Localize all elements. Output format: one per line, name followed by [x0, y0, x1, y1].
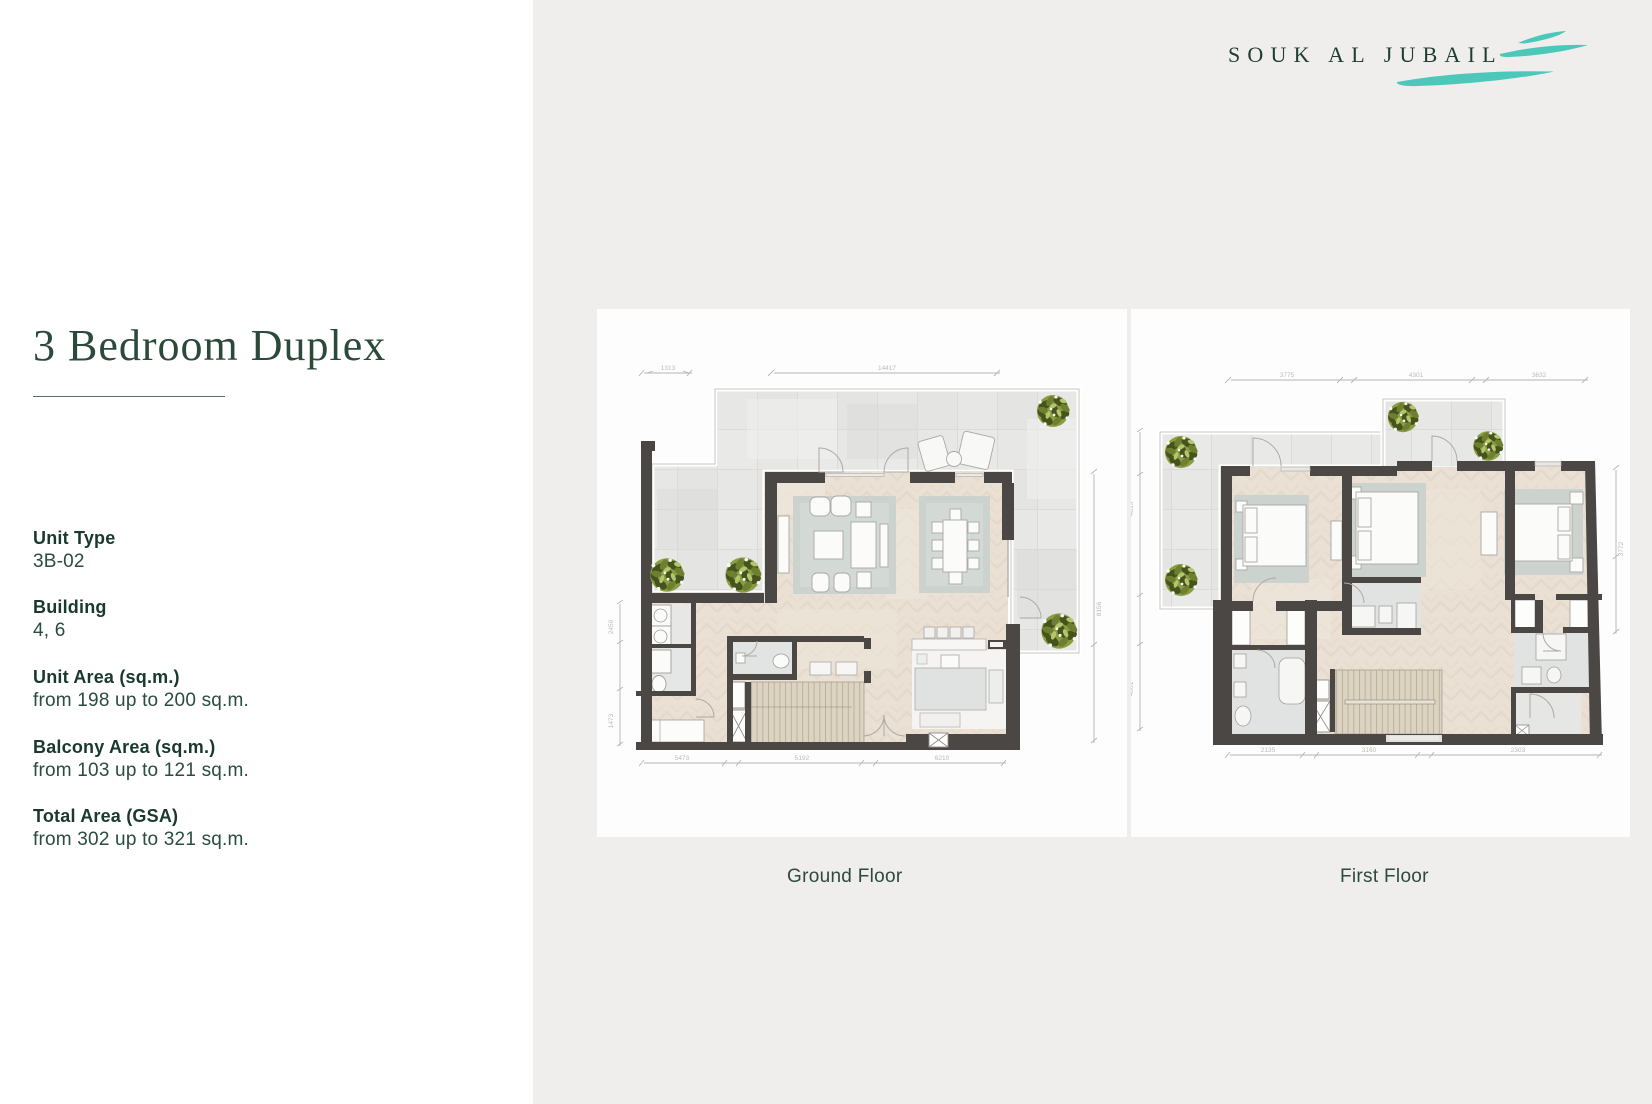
svg-text:5192: 5192 — [795, 755, 810, 762]
svg-text:3775: 3775 — [1280, 372, 1295, 379]
svg-text:2135: 2135 — [1261, 747, 1276, 754]
svg-text:4001: 4001 — [1131, 681, 1135, 696]
svg-text:4301: 4301 — [1409, 372, 1424, 379]
svg-text:3632: 3632 — [1532, 372, 1547, 379]
svg-text:14417: 14417 — [878, 365, 896, 372]
svg-text:3160: 3160 — [1362, 747, 1377, 754]
svg-text:8156: 8156 — [1096, 601, 1103, 616]
svg-text:2459: 2459 — [608, 619, 615, 634]
svg-text:1473: 1473 — [608, 713, 615, 728]
svg-text:3772: 3772 — [1618, 541, 1625, 556]
svg-text:6210: 6210 — [935, 755, 950, 762]
svg-text:4815: 4815 — [1131, 501, 1135, 516]
svg-text:5473: 5473 — [675, 755, 690, 762]
svg-text:2303: 2303 — [1511, 747, 1526, 754]
svg-text:1313: 1313 — [661, 365, 676, 372]
